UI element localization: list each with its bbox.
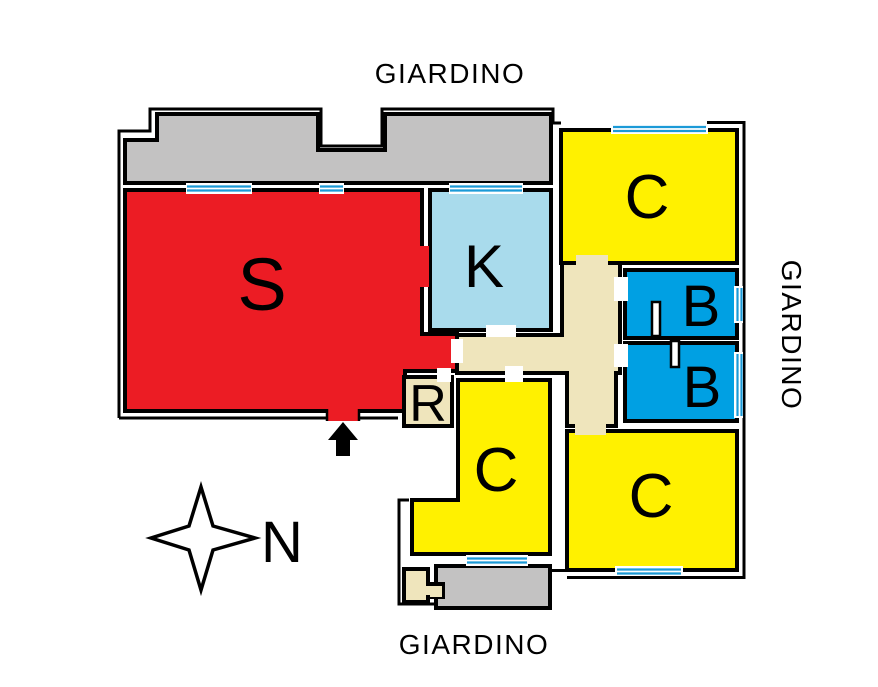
window-bedroom-bottom-right <box>615 566 683 576</box>
door-living-hall <box>451 339 463 363</box>
door-bedroom-top <box>576 255 608 271</box>
garden-label-right: GIARDINO <box>776 260 807 410</box>
terrace-bottom <box>436 566 550 608</box>
north-label: N <box>261 510 303 575</box>
window-bedroom-middle <box>466 555 528 566</box>
wall-stub-bathroom-top <box>652 302 660 336</box>
door-bathroom-bottom <box>614 344 628 367</box>
door-bedroom-bottom-right <box>575 419 606 435</box>
wall-stub-bathroom-bottom <box>671 341 679 367</box>
terrace-top <box>125 114 551 183</box>
floor-plan-canvas: N GIARDINO GIARDINO GIARDINO S K C B B C… <box>0 0 878 687</box>
door-kitchen <box>486 325 516 337</box>
window-living-left <box>186 183 252 194</box>
compass-star-icon <box>151 487 255 590</box>
door-bedroom-middle <box>505 366 523 382</box>
label-storage: R <box>409 375 447 433</box>
label-kitchen: K <box>464 233 504 300</box>
label-living: S <box>237 243 286 326</box>
window-bedroom-top <box>611 124 708 134</box>
door-bathroom-top <box>614 277 628 301</box>
window-living-small <box>319 183 344 194</box>
garden-label-bottom: GIARDINO <box>399 629 549 660</box>
door-living-kitchen <box>419 246 429 287</box>
window-bathroom-top <box>734 286 743 323</box>
door-closet <box>430 586 442 597</box>
label-bedroom-middle: C <box>474 436 519 505</box>
entrance-arrow-icon <box>328 422 358 456</box>
garden-label-top: GIARDINO <box>375 58 525 89</box>
window-bathroom-bottom <box>734 352 743 418</box>
label-bathroom-top: B <box>682 274 721 339</box>
window-kitchen <box>449 183 523 194</box>
entrance-opening <box>328 409 358 421</box>
label-bathroom-bottom: B <box>683 355 722 420</box>
label-bedroom-bottom-right: C <box>629 462 674 531</box>
label-bedroom-top: C <box>625 163 670 232</box>
